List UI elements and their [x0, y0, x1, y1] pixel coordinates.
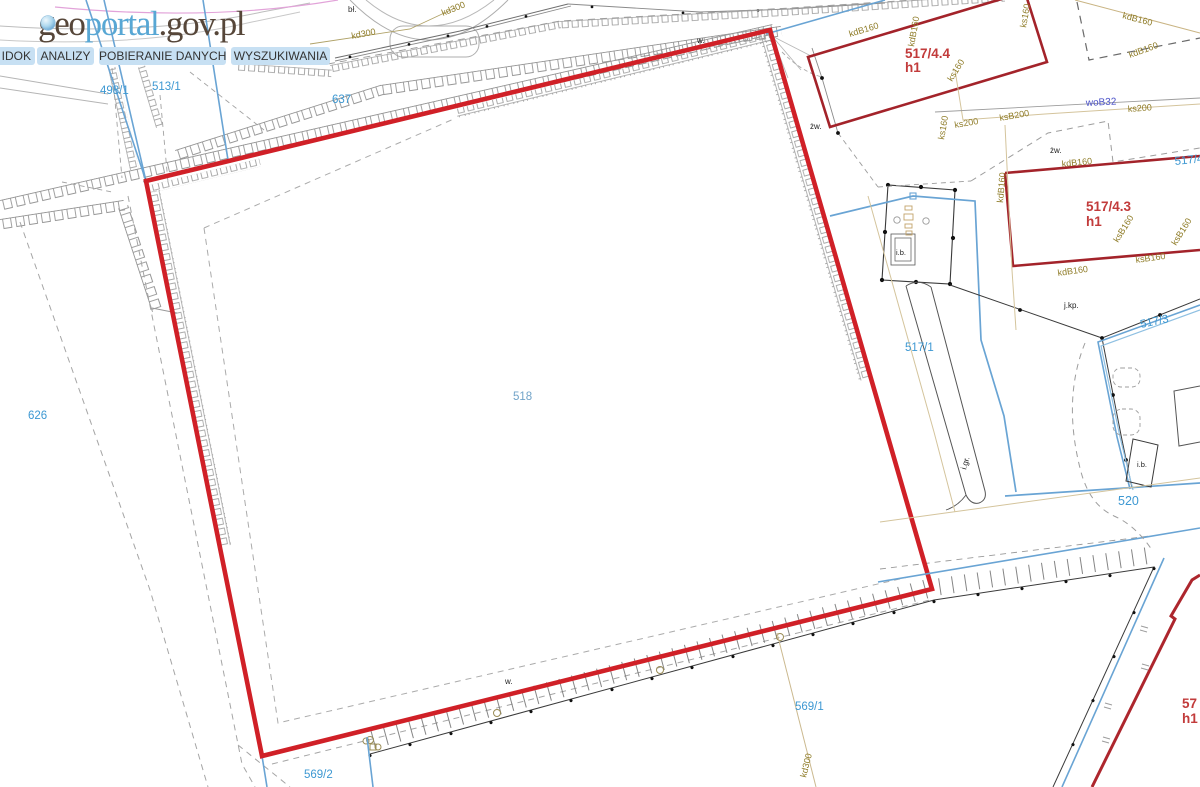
svg-text:569/2: 569/2 [304, 769, 333, 781]
svg-text:i.b.: i.b. [1137, 460, 1147, 469]
svg-text:513/1: 513/1 [152, 81, 181, 93]
svg-text:637: 637 [332, 94, 351, 106]
svg-text:517/4: 517/4 [1174, 153, 1200, 168]
svg-text:517/1: 517/1 [905, 342, 934, 354]
svg-text:i.b.: i.b. [896, 248, 906, 257]
svg-text:498/1: 498/1 [100, 85, 129, 97]
svg-text:h1: h1 [905, 60, 921, 75]
svg-text:bł.: bł. [348, 5, 356, 14]
svg-text:57: 57 [1182, 696, 1197, 711]
svg-text:żw.: żw. [1050, 146, 1062, 155]
svg-text:w.: w. [696, 36, 705, 45]
svg-text:518: 518 [513, 391, 532, 403]
svg-text:w.: w. [504, 677, 513, 686]
svg-text:ks200: ks200 [1127, 102, 1152, 114]
svg-text:520: 520 [1118, 494, 1139, 508]
svg-text:517/4.4: 517/4.4 [905, 46, 951, 61]
svg-text:h1: h1 [1086, 214, 1102, 229]
svg-text:569/1: 569/1 [795, 701, 824, 713]
svg-text:żw.: żw. [810, 122, 822, 131]
svg-text:517/4.3: 517/4.3 [1086, 199, 1132, 214]
svg-text:woB32: woB32 [1085, 96, 1118, 109]
svg-text:626: 626 [28, 410, 47, 422]
svg-text:h1: h1 [1182, 711, 1198, 726]
svg-text:j.kp.: j.kp. [1063, 301, 1079, 310]
